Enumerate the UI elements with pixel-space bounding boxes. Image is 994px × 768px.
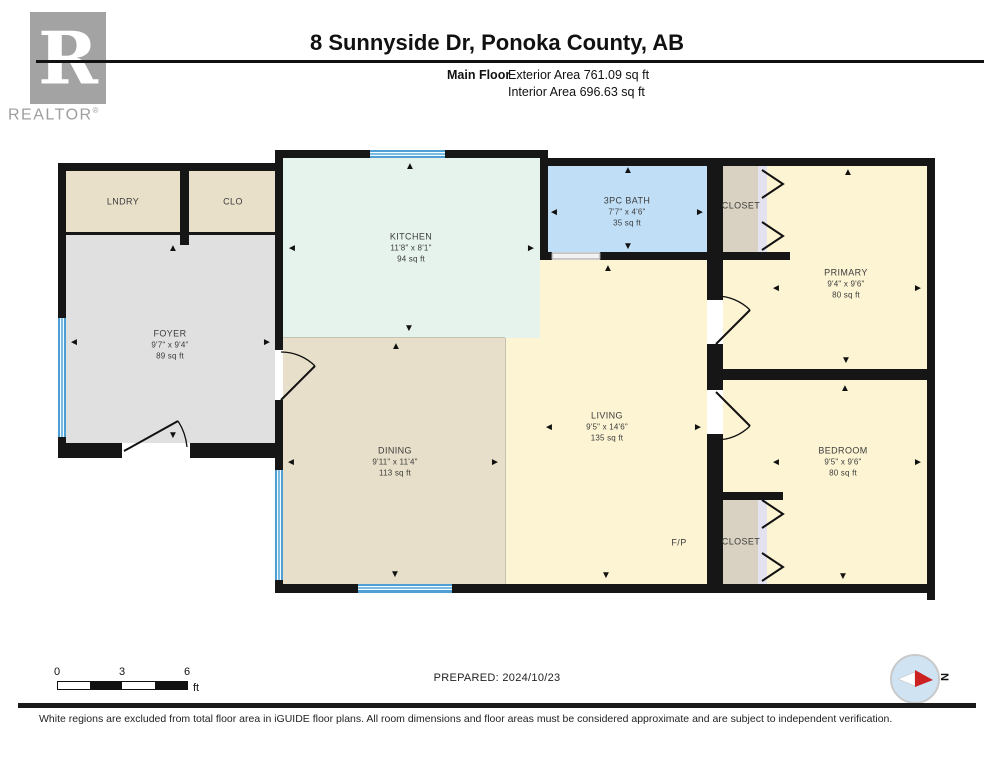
dimension-arrow-left-icon — [287, 244, 297, 254]
room-label-bedroom: BEDROOM 9'5" x 9'6" 80 sq ft — [818, 446, 867, 479]
room-label-primary: PRIMARY 9'4" x 9'6" 80 sq ft — [824, 268, 868, 301]
dimension-arrow-down-icon — [168, 431, 178, 441]
dimension-arrow-up-icon — [623, 166, 633, 176]
room-label-living: LIVING 9'5" x 14'6" 135 sq ft — [586, 411, 628, 444]
room-label-closet-bottom: CLOSET — [722, 537, 760, 548]
dimension-arrow-left-icon — [286, 458, 296, 468]
room-label-clo: CLO — [223, 197, 243, 208]
compass-north-label: N — [938, 673, 950, 681]
dimension-arrow-up-icon — [840, 384, 850, 394]
dimension-arrow-left-icon — [771, 284, 781, 294]
dimension-arrow-right-icon — [526, 244, 536, 254]
dimension-arrow-right-icon — [913, 458, 923, 468]
room-label-foyer: FOYER 9'7" x 9'4" 89 sq ft — [151, 329, 188, 362]
room-label-fireplace: F/P — [671, 538, 686, 549]
dimension-arrow-right-icon — [693, 423, 703, 433]
compass-icon — [890, 654, 940, 704]
dimension-arrow-right-icon — [695, 208, 705, 218]
dimension-arrow-down-icon — [623, 242, 633, 252]
floor-plan-page: R REALTOR® 8 Sunnyside Dr, Ponoka County… — [0, 0, 994, 768]
dimension-arrow-right-icon — [913, 284, 923, 294]
dimension-arrow-up-icon — [603, 264, 613, 274]
dimension-arrow-up-icon — [391, 342, 401, 352]
dimension-arrow-right-icon — [490, 458, 500, 468]
dimension-arrow-down-icon — [390, 570, 400, 580]
compass-needle-icon — [892, 656, 938, 702]
dimension-arrow-left-icon — [549, 208, 559, 218]
prepared-date-label: PREPARED: 2024/10/23 — [0, 672, 994, 684]
room-label-kitchen: KITCHEN 11'8" x 8'1" 94 sq ft — [390, 232, 432, 265]
room-label-lndry: LNDRY — [107, 197, 139, 208]
footer-divider — [18, 703, 976, 708]
footer-disclaimer: White regions are excluded from total fl… — [39, 713, 969, 725]
dimension-arrow-down-icon — [601, 571, 611, 581]
dimension-arrow-left-icon — [771, 458, 781, 468]
room-label-dining: DINING 9'11" x 11'4" 113 sq ft — [372, 446, 417, 479]
dimension-arrow-left-icon — [544, 423, 554, 433]
dimension-arrow-up-icon — [843, 168, 853, 178]
dimension-arrow-up-icon — [405, 162, 415, 172]
dimension-arrow-up-icon — [168, 244, 178, 254]
dimension-arrow-left-icon — [69, 338, 79, 348]
dimension-arrow-down-icon — [841, 356, 851, 366]
dimension-arrow-right-icon — [262, 338, 272, 348]
dimension-arrow-down-icon — [838, 572, 848, 582]
room-label-bath: 3PC BATH 7'7" x 4'6" 35 sq ft — [604, 196, 651, 229]
dimension-arrow-down-icon — [404, 324, 414, 334]
room-label-closet-top: CLOSET — [722, 201, 760, 212]
